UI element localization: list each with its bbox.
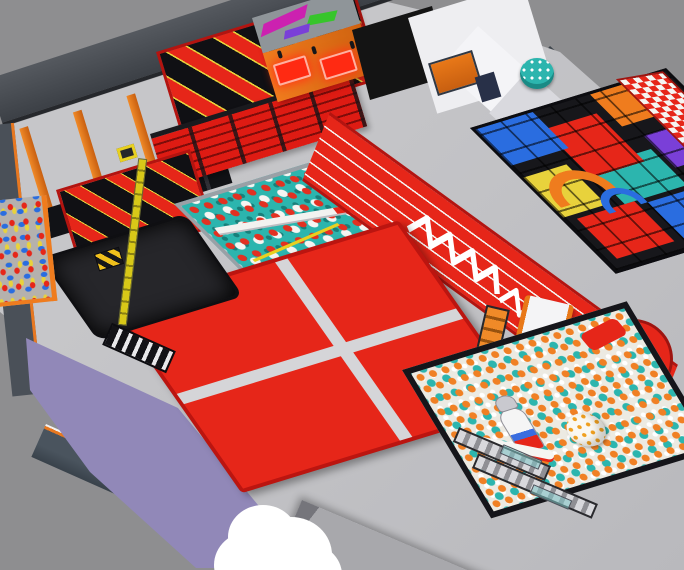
jumper-figure <box>277 50 283 59</box>
jumper-figure <box>311 46 317 55</box>
spike-ball-topper <box>520 58 554 89</box>
cloud-shape <box>228 505 298 569</box>
graffiti-shape <box>307 10 338 26</box>
floor-arrow-decals-bottom <box>488 428 668 568</box>
checker-panel <box>616 71 684 153</box>
trampoline-park-render <box>0 0 684 570</box>
floor-arrow-decals-right <box>585 190 675 340</box>
graffiti-shape <box>284 23 310 39</box>
glowing-court <box>273 55 312 86</box>
jumper-figure <box>349 40 355 49</box>
glowing-court <box>319 49 358 80</box>
